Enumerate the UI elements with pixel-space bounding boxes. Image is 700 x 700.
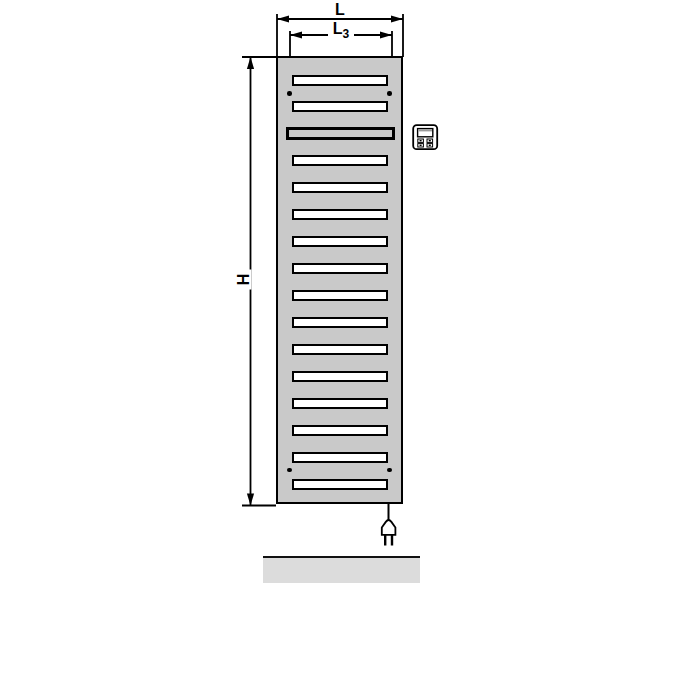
plug-body xyxy=(382,520,396,535)
vent-slot xyxy=(292,425,388,436)
vent-slot xyxy=(292,344,388,355)
vent-slot xyxy=(292,182,388,193)
power-plug-icon xyxy=(382,503,396,546)
vent-slot xyxy=(292,371,388,382)
vent-slot xyxy=(292,155,388,166)
control-unit-icon xyxy=(412,124,439,151)
arrowhead-left-icon xyxy=(277,15,289,22)
mounting-dot xyxy=(287,468,292,473)
vent-slot xyxy=(292,101,388,112)
vent-slot xyxy=(292,452,388,463)
label-overall-height: H xyxy=(235,270,252,290)
label-mounting-width-main: L xyxy=(333,20,343,37)
label-overall-width: L xyxy=(330,1,350,18)
vent-slot xyxy=(292,317,388,328)
label-mounting-width-sub: 3 xyxy=(343,26,350,43)
label-mounting-width: L3 xyxy=(328,20,354,39)
arrowhead-up-icon xyxy=(247,57,254,69)
arrowhead-left-icon xyxy=(290,31,302,38)
arrowhead-right-icon xyxy=(380,31,392,38)
arrowhead-right-icon xyxy=(391,15,403,22)
vent-slot xyxy=(292,398,388,409)
heating-bar-slot xyxy=(286,127,395,140)
vent-slot xyxy=(292,290,388,301)
radiator-body xyxy=(276,56,403,504)
arrowhead-down-icon xyxy=(247,494,254,506)
vent-slot xyxy=(292,209,388,220)
mounting-dot xyxy=(387,91,392,96)
floor-slab xyxy=(263,556,420,583)
mounting-dot xyxy=(387,468,392,473)
technical-drawing-canvas: L L3 H xyxy=(0,0,700,700)
vent-slot xyxy=(292,75,388,86)
vent-slot xyxy=(292,263,388,274)
vent-slot xyxy=(292,236,388,247)
vent-slot xyxy=(292,479,388,490)
control-display-bar xyxy=(418,129,432,131)
mounting-dot xyxy=(287,91,292,96)
